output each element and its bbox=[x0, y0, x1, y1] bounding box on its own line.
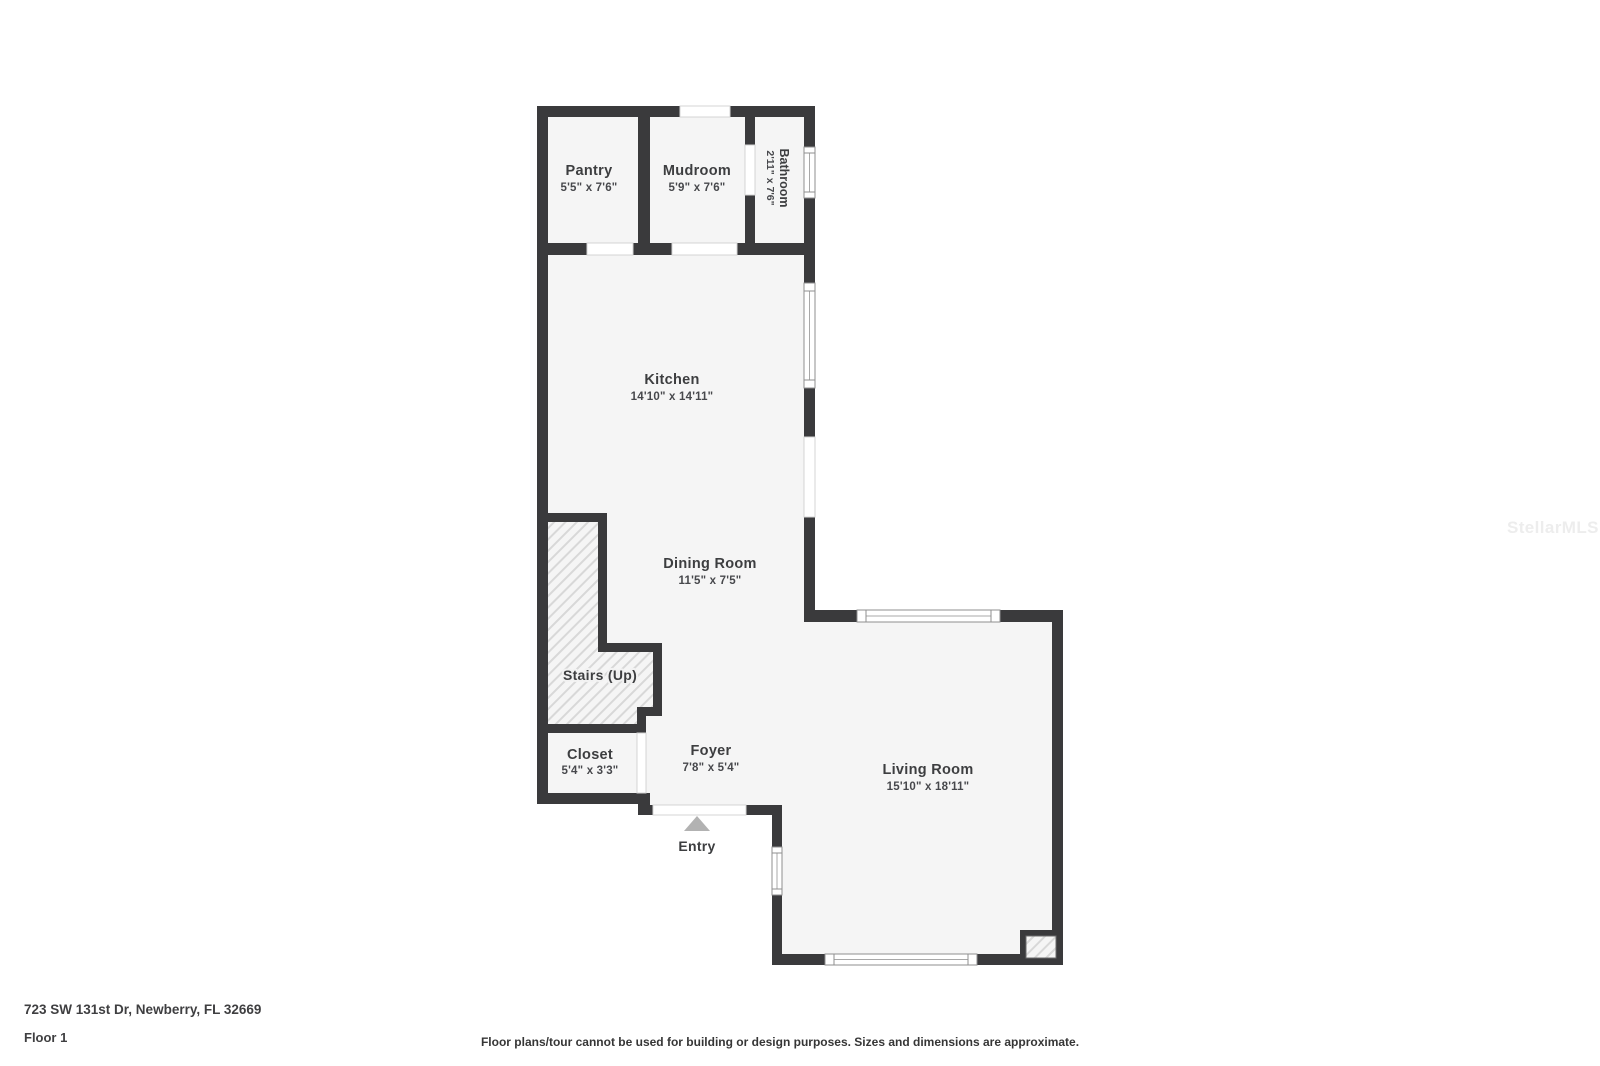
wall-segment bbox=[653, 643, 662, 716]
room-dims-pantry: 5'5" x 7'6" bbox=[561, 182, 618, 194]
wall-segment bbox=[537, 243, 587, 255]
wall-segment bbox=[804, 517, 815, 622]
room-label-pantry: Pantry bbox=[566, 163, 613, 179]
door-opening bbox=[672, 243, 737, 255]
entry-arrow-icon bbox=[684, 816, 710, 831]
wall-segment bbox=[804, 388, 815, 437]
wall-segment bbox=[745, 195, 755, 243]
wall-segment bbox=[804, 610, 857, 622]
wall-segment bbox=[730, 106, 815, 117]
wall-segment bbox=[537, 793, 650, 804]
room-dims-foyer: 7'8" x 5'4" bbox=[683, 762, 740, 774]
window bbox=[825, 954, 977, 965]
floor-plan-page: Pantry 5'5" x 7'6" Mudroom 5'9" x 7'6" B… bbox=[0, 0, 1600, 1066]
room-dims-bathroom: 2'11" x 7'6" bbox=[764, 150, 776, 205]
wall-segment bbox=[537, 106, 548, 804]
wall-segment bbox=[804, 198, 815, 283]
room-dims-mudroom: 5'9" x 7'6" bbox=[669, 182, 726, 194]
room-label-mudroom: Mudroom bbox=[663, 163, 731, 179]
window bbox=[804, 283, 815, 388]
wall-segment bbox=[633, 243, 672, 255]
room-dims-dining: 11'5" x 7'5" bbox=[679, 575, 742, 587]
door-opening bbox=[745, 145, 755, 195]
wall-segment bbox=[745, 117, 755, 145]
fireplace-hatch bbox=[1026, 936, 1056, 958]
floor-label: Floor 1 bbox=[24, 1030, 67, 1045]
room-dims-closet: 5'4" x 3'3" bbox=[562, 765, 619, 777]
address-text: 723 SW 131st Dr, Newberry, FL 32669 bbox=[24, 1002, 261, 1017]
fireplace bbox=[1020, 930, 1063, 965]
room-label-bathroom: Bathroom bbox=[777, 148, 791, 207]
stellar-mls-watermark: StellarMLS bbox=[1507, 518, 1599, 538]
wall-segment bbox=[537, 724, 646, 733]
room-label-living: Living Room bbox=[882, 762, 973, 778]
room-label-stairs: Stairs (Up) bbox=[563, 667, 637, 683]
room-label-foyer: Foyer bbox=[691, 743, 732, 759]
window bbox=[857, 610, 1000, 622]
wall-segment bbox=[772, 895, 782, 965]
window bbox=[772, 847, 782, 895]
room-label-dining: Dining Room bbox=[663, 556, 757, 572]
wall-segment bbox=[737, 243, 815, 255]
window bbox=[804, 147, 815, 198]
disclaimer-text: Floor plans/tour cannot be used for buil… bbox=[330, 1035, 1230, 1049]
room-dims-living: 15'10" x 18'11" bbox=[887, 781, 970, 793]
wall-segment bbox=[804, 106, 815, 147]
entry-opening bbox=[653, 805, 746, 815]
room-dims-kitchen: 14'10" x 14'11" bbox=[631, 391, 714, 403]
floor-plan: Pantry 5'5" x 7'6" Mudroom 5'9" x 7'6" B… bbox=[0, 0, 1600, 1066]
wall-segment bbox=[537, 106, 680, 117]
room-label-closet: Closet bbox=[567, 747, 613, 763]
door-opening bbox=[804, 437, 815, 517]
door-opening bbox=[680, 106, 730, 117]
wall-segment bbox=[638, 117, 650, 243]
wall-segment bbox=[598, 513, 607, 652]
wall-segment bbox=[598, 643, 662, 652]
room-label-kitchen: Kitchen bbox=[644, 372, 699, 388]
door-opening bbox=[637, 733, 646, 793]
room-label-bathroom-group: Bathroom 2'11" x 7'6" bbox=[764, 148, 791, 207]
wall-segment bbox=[1052, 610, 1063, 965]
entry-label: Entry bbox=[678, 838, 715, 854]
wall-segment bbox=[537, 513, 607, 522]
wall-segment bbox=[638, 793, 650, 815]
door-opening bbox=[587, 243, 633, 255]
floor-area bbox=[537, 106, 1063, 965]
wall-segment bbox=[746, 805, 782, 815]
